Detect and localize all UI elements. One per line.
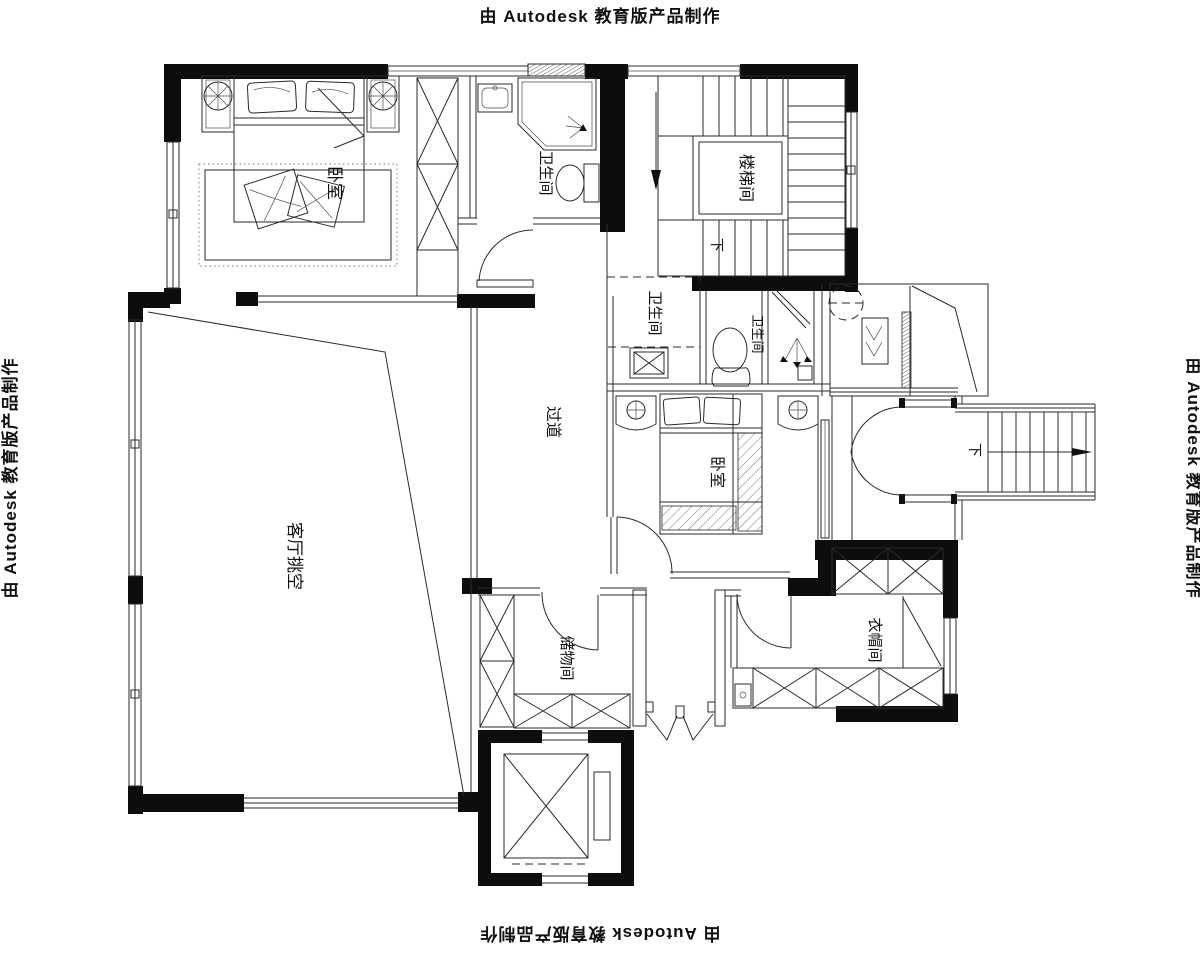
stair-arrow-head (651, 170, 661, 190)
second-bedroom: 卧室 (616, 394, 818, 534)
room-label-living-void: 客厅挑空 (285, 522, 304, 590)
master-bathroom: 卫生间 (478, 78, 599, 202)
hallway: 过道 (544, 406, 562, 438)
watermark-top: 由 Autodesk 教育版产品制作 (480, 6, 721, 26)
room-label-second-bedroom: 卧室 (708, 456, 726, 488)
watermark-right-text: 由 Autodesk 教育版产品制作 (1184, 358, 1200, 599)
watermark-left-text: 由 Autodesk 教育版产品制作 (0, 358, 20, 599)
room-label-storage: 储物间 (558, 635, 575, 680)
watermark-bottom-text: 由 Autodesk 教育版产品制作 (480, 924, 721, 944)
room-label-middle-bathroom: 卫生间 (750, 314, 765, 353)
floor-plan-page: 由 Autodesk 教育版产品制作 由 Autodesk 教育版产品制作 由 … (0, 0, 1200, 960)
upper-bathroom-dashed: 卫生间 (607, 277, 700, 378)
master-bedroom: 卧室 (199, 76, 458, 296)
watermark-bottom: 由 Autodesk 教育版产品制作 (480, 924, 721, 944)
room-label-master-bathroom: 卫生间 (537, 150, 554, 195)
watermark-right: 由 Autodesk 教育版产品制作 (1184, 358, 1200, 599)
living-room-void: 客厅挑空 (148, 312, 464, 796)
room-label-hallway: 过道 (544, 406, 562, 438)
elevator (504, 754, 610, 858)
room-label-upper-bathroom: 卫生间 (646, 290, 663, 335)
room-label-cloakroom: 衣帽间 (866, 617, 883, 662)
stairwell: 下 楼梯间 (651, 76, 845, 276)
watermark-left: 由 Autodesk 教育版产品制作 (0, 358, 20, 599)
exterior-stair-arrow-head (1072, 448, 1092, 456)
storage-room: 储物间 (480, 595, 630, 728)
room-label-stairwell: 楼梯间 (737, 154, 755, 202)
room-label-master-bedroom: 卧室 (325, 166, 344, 200)
exterior-stair-down-label: 下 (967, 443, 983, 457)
watermark-top-text: 由 Autodesk 教育版产品制作 (480, 6, 721, 26)
terrace-area (829, 284, 988, 396)
master-closet (417, 78, 458, 296)
stair-down-label: 下 (709, 238, 725, 252)
exterior-stairs: 下 (955, 404, 1095, 500)
floor-plan-drawing: 由 Autodesk 教育版产品制作 由 Autodesk 教育版产品制作 由 … (0, 0, 1200, 960)
